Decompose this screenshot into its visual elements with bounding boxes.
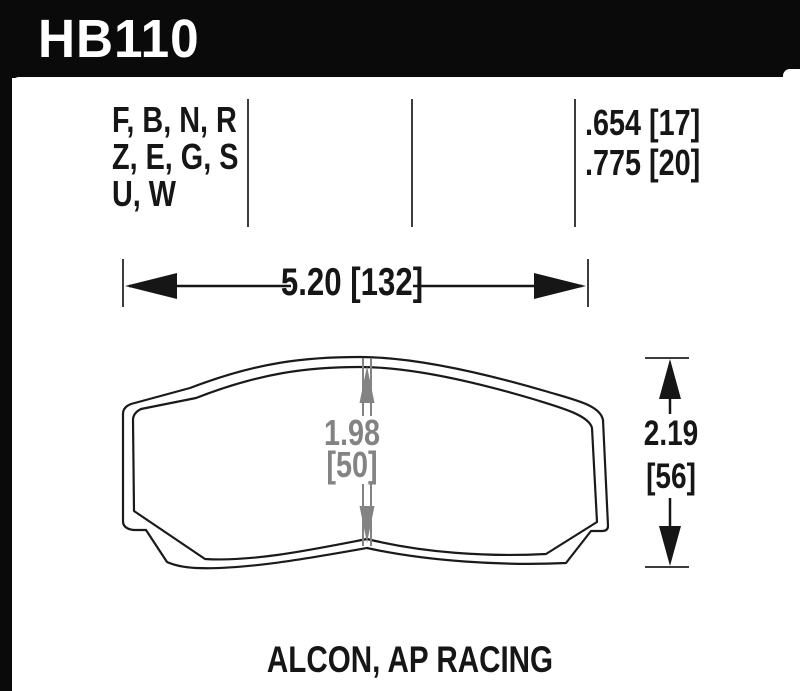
depth-dimension-metric: [50] <box>304 444 400 486</box>
application-label: ALCON, AP RACING <box>170 639 650 681</box>
part-number-label: HB110 <box>38 8 200 70</box>
height-dimension-value: 2.19 <box>623 414 719 454</box>
catalog-page: HB110 F, B, N, R Z, E, G, S U, W .654 [1… <box>0 0 800 691</box>
thickness-line-1: .654 [17] <box>585 103 700 143</box>
compound-line-3: U, W <box>112 175 238 212</box>
compound-line-2: Z, E, G, S <box>112 138 238 175</box>
compound-codes: F, B, N, R Z, E, G, S U, W <box>112 101 238 212</box>
spec-divider-1 <box>247 99 249 227</box>
width-dimension-label: 5.20 [132] <box>232 261 472 305</box>
compound-line-1: F, B, N, R <box>112 101 238 138</box>
thickness-line-2: .775 [20] <box>585 143 700 183</box>
panel-top-right-notch <box>783 69 800 81</box>
height-dimension-metric: [56] <box>623 457 719 497</box>
pad-thickness-values: .654 [17] .775 [20] <box>585 103 700 183</box>
spec-divider-3 <box>574 99 576 227</box>
spec-divider-2 <box>411 99 413 227</box>
left-border-bar <box>0 0 12 691</box>
